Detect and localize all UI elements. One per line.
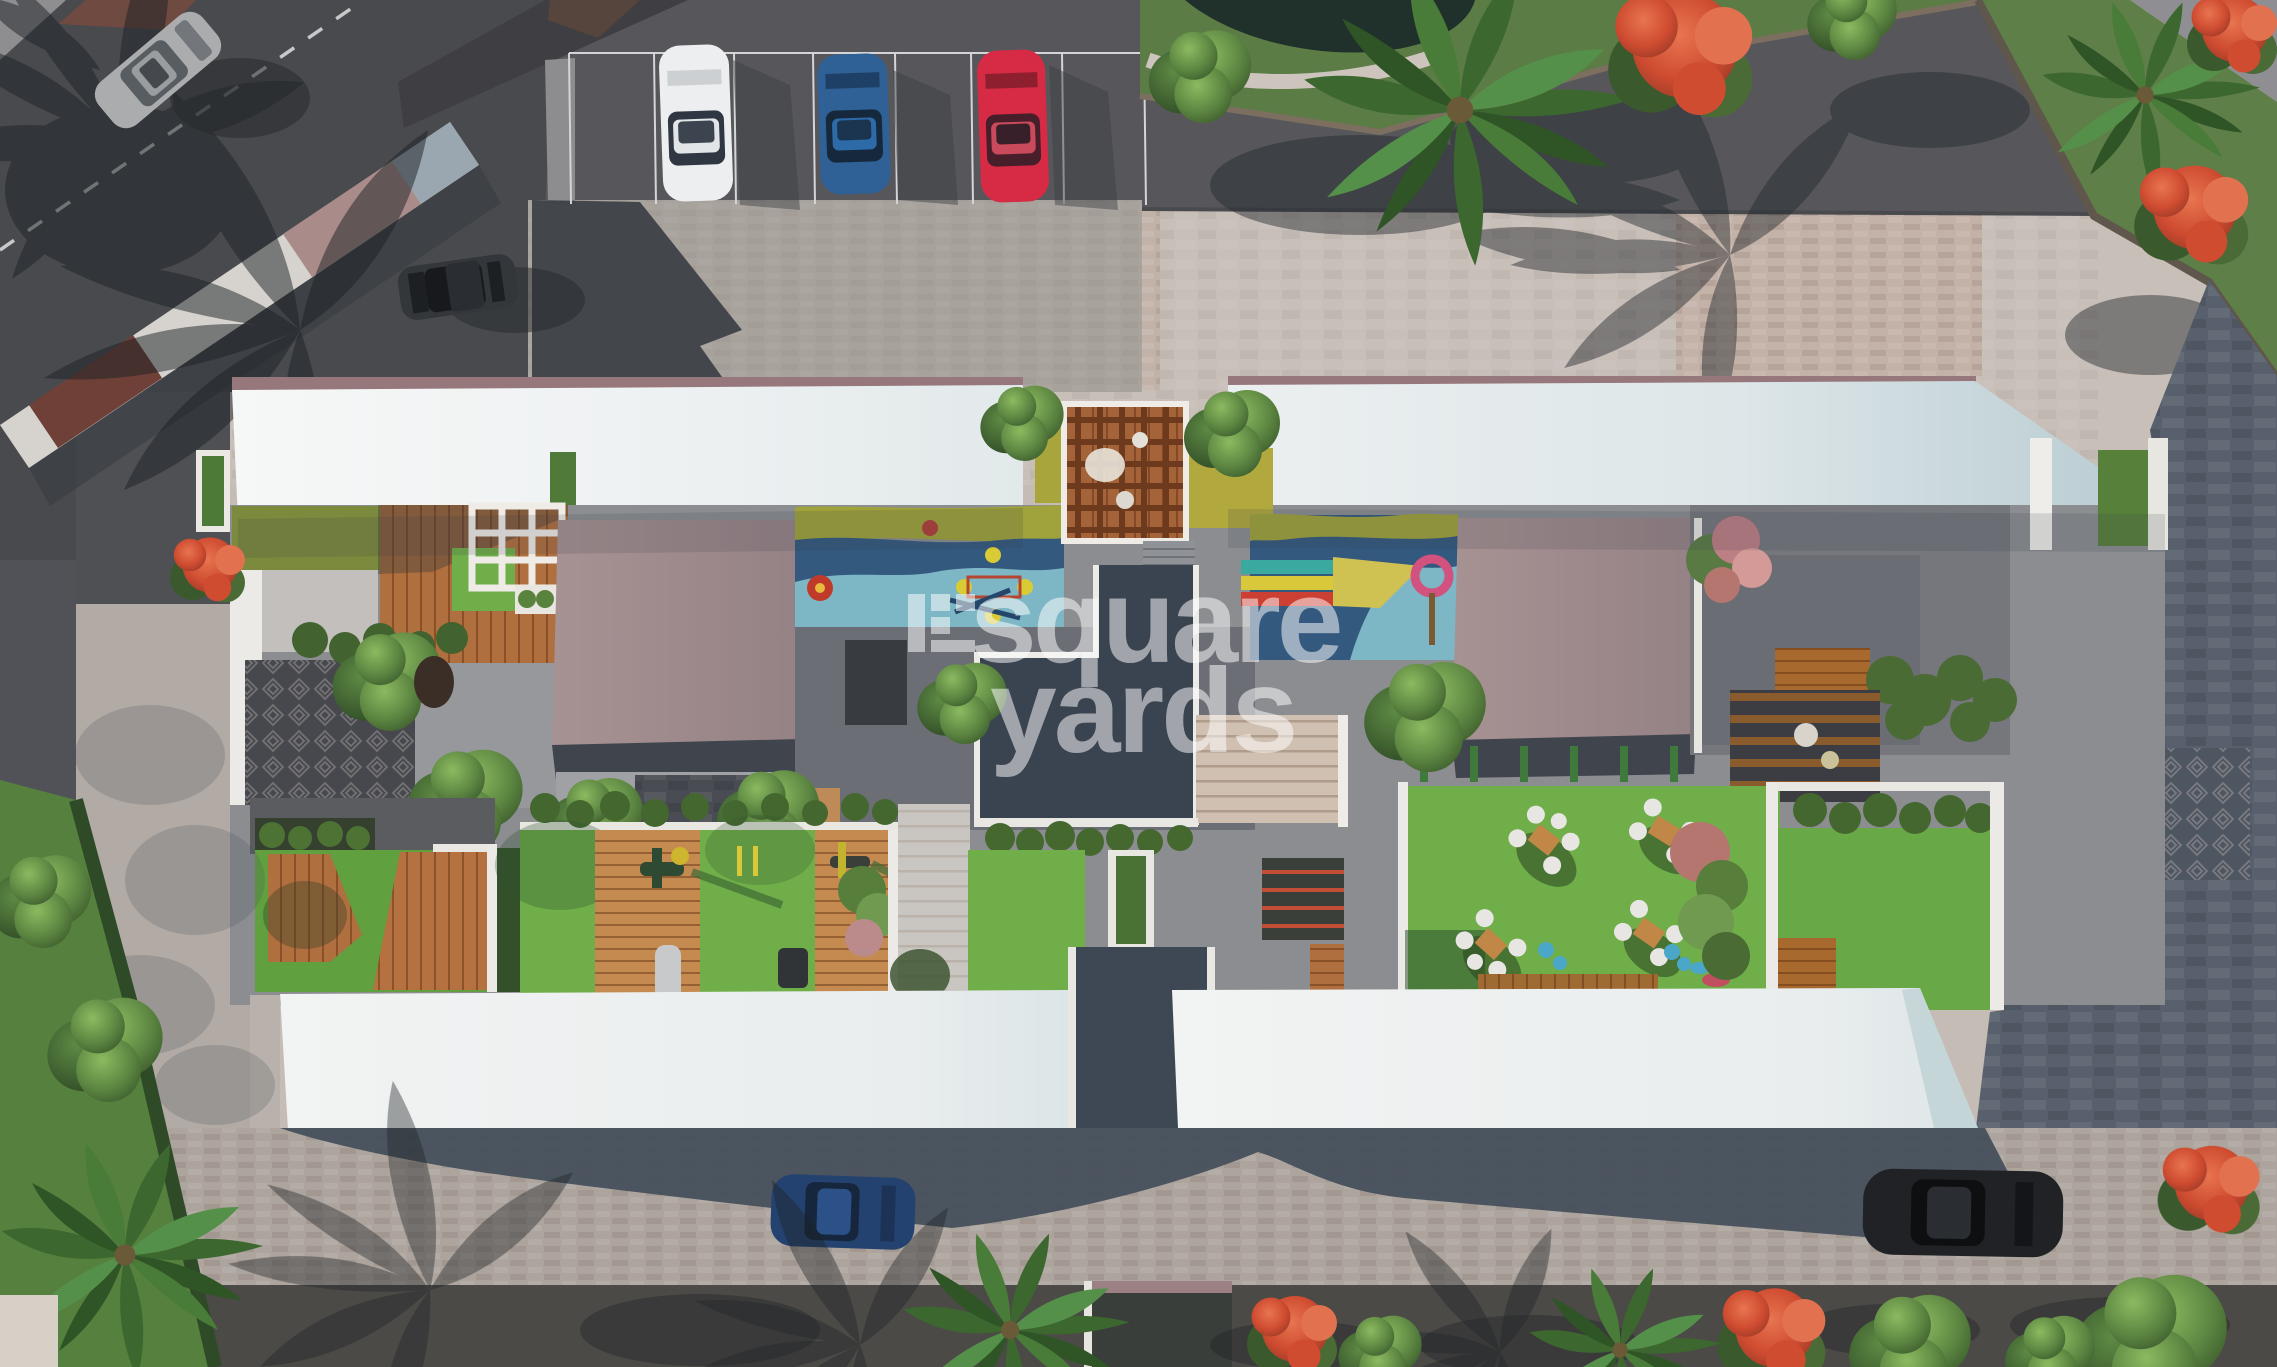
svg-text:yards: yards (990, 644, 1295, 778)
